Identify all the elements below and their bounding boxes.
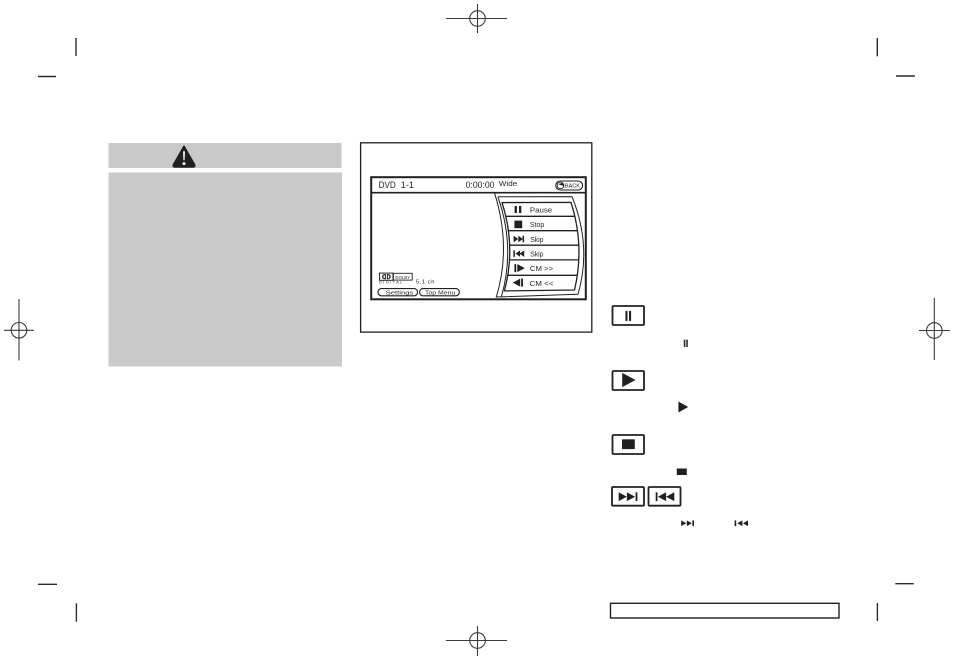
svg-text:DVD: DVD	[379, 180, 396, 190]
svg-text:Settings: Settings	[386, 291, 414, 297]
svg-text:1-1: 1-1	[401, 180, 414, 190]
svg-text:Top Menu: Top Menu	[425, 291, 455, 297]
svg-text:DIGITAL: DIGITAL	[379, 279, 403, 284]
svg-text:CM <<: CM <<	[530, 279, 554, 288]
svg-text:5.1 ch: 5.1 ch	[416, 280, 435, 286]
svg-text:0:00:00: 0:00:00	[466, 180, 495, 190]
svg-text:Skip: Skip	[530, 250, 543, 259]
svg-text:Wide: Wide	[499, 181, 518, 188]
svg-text:BACK: BACK	[565, 184, 581, 190]
svg-text:CM >>: CM >>	[530, 264, 553, 273]
svg-text:Pause: Pause	[530, 206, 552, 215]
svg-text:Stop: Stop	[530, 220, 544, 229]
svg-text:Skip: Skip	[530, 235, 543, 244]
